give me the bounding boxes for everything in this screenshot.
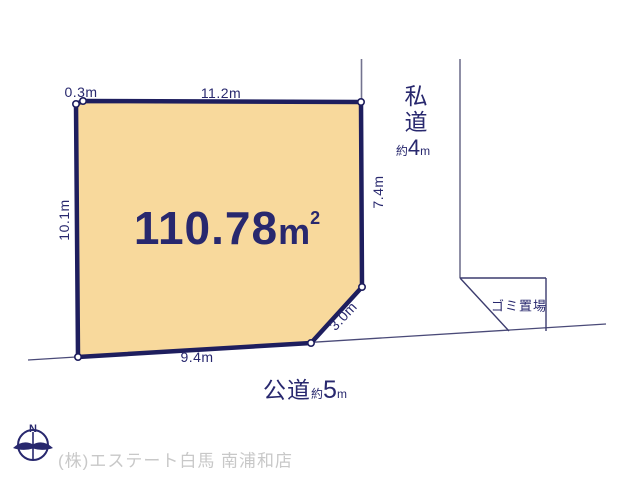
plot-area-superscript: 2 [310, 208, 320, 229]
dimension-right-edge: 7.4m [370, 175, 386, 208]
plot-area-value: 110.78 [134, 201, 278, 255]
plot-area-label: 110.78m2 [134, 201, 320, 255]
dimension-bottom-edge: 9.4m [180, 349, 213, 365]
public-road-value: 5 [323, 376, 337, 405]
garbage-area-label: ゴミ置場 [491, 296, 547, 315]
footer-company-name: (株)エステート白馬 南浦和店 [58, 447, 293, 472]
private-road-approx: 約 [396, 142, 408, 159]
dimension-top-edge: 11.2m [201, 85, 241, 101]
public-road-approx: 約 [311, 385, 323, 402]
private-road-unit: m [420, 144, 430, 158]
public-road-name: 公道 [263, 371, 311, 405]
plot-area-unit: m [278, 211, 310, 253]
compass-north-letter: N [29, 423, 37, 435]
private-road-value: 4 [408, 135, 420, 161]
land-plot-diagram: 0.3m 11.2m 10.1m 7.4m 3.0m 9.4m 110.78m2… [0, 0, 640, 480]
dimension-top-left-segment: 0.3m [64, 84, 97, 100]
private-road-label: 私道 [397, 84, 431, 136]
private-road-width: 約4m [396, 135, 430, 161]
public-road-label: 公道約5m [263, 371, 347, 405]
public-road-unit: m [337, 387, 347, 401]
dimension-left-edge: 10.1m [56, 199, 72, 240]
